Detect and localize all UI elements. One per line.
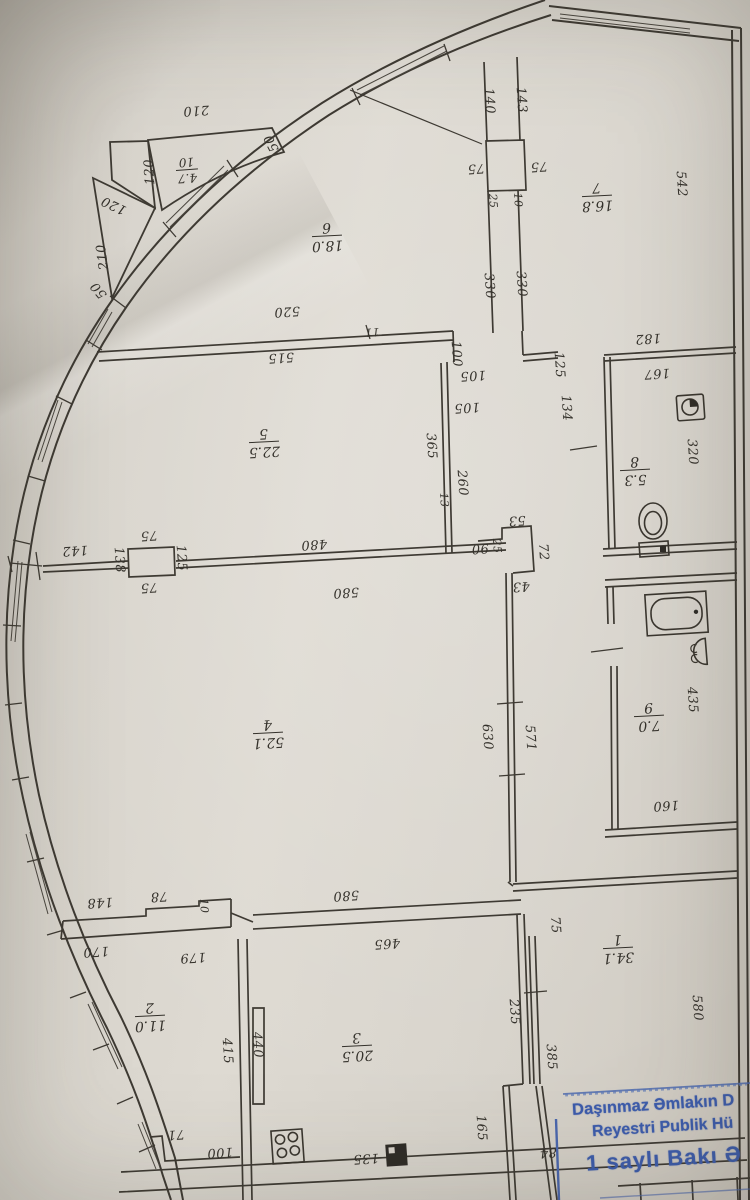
toilet-icon (639, 503, 669, 557)
dimension-label: 105 (454, 399, 481, 416)
dimension-label: 385 (543, 1044, 560, 1071)
dimension-label: 135 (353, 1150, 380, 1167)
dimension-label: 25 (486, 193, 500, 209)
dimension-label: 10 (511, 192, 525, 208)
dimension-label: 75 (530, 158, 548, 174)
dimension-label: 100 (207, 1144, 234, 1161)
dimension-label: 148 (87, 894, 114, 911)
room-label-5: 22.55 (245, 425, 283, 459)
exterior-walls (6, 0, 749, 1200)
meter-icon (385, 1143, 407, 1166)
dimension-label: 520 (274, 303, 301, 320)
room-label-10: 4.710 (171, 155, 203, 185)
dimension-label: 25 (490, 538, 504, 554)
room-label-1: 34.11 (599, 931, 637, 965)
dimension-label: 125 (173, 545, 190, 572)
dimension-label: 465 (374, 935, 401, 952)
dimension-label: 571 (522, 725, 539, 752)
room-label-3: 20.53 (338, 1029, 376, 1063)
dimension-label: 100 (448, 341, 465, 368)
dimension-label: 120 (142, 159, 159, 186)
room-label-8: 5.38 (616, 453, 654, 487)
dimension-label: 10 (197, 898, 211, 914)
dimension-label: 580 (689, 995, 706, 1022)
dimension-label: 182 (635, 330, 662, 347)
dimension-label: 365 (423, 433, 440, 460)
dimension-label: 630 (479, 724, 496, 751)
dimension-label: 440 (249, 1032, 266, 1059)
stove-icon (271, 1129, 304, 1164)
dimension-label: 134 (558, 395, 575, 422)
dimension-label: 160 (653, 797, 680, 814)
washing-machine-icon (676, 394, 705, 421)
room-label-6: 18.06 (308, 219, 346, 253)
dimension-label: 75 (140, 527, 158, 543)
dimension-label: 165 (473, 1115, 490, 1142)
room-label-2: 11.02 (131, 999, 169, 1033)
dimension-label: 125 (551, 352, 568, 379)
dimension-label: 580 (333, 887, 360, 904)
dimension-label: 480 (301, 536, 328, 553)
dimension-label: 140 (481, 88, 498, 115)
dimension-label: 75 (547, 916, 563, 934)
dimension-label: 580 (333, 584, 360, 601)
dimension-label: 210 (183, 102, 210, 119)
dimension-label: 142 (62, 542, 89, 559)
dimension-label: 320 (684, 439, 701, 466)
dimension-label: 43 (512, 578, 530, 594)
dimension-label: 179 (180, 949, 207, 966)
dimension-label: 260 (454, 470, 471, 497)
dimension-label: 13 (437, 492, 451, 508)
dimension-label: 515 (268, 349, 295, 366)
dimension-label: 71 (167, 1126, 185, 1142)
floor-plan-drawing (0, 0, 750, 1200)
dimension-label: 72 (535, 543, 551, 561)
room-label-7: 16.87 (578, 179, 616, 213)
dimension-label: 235 (506, 999, 523, 1026)
dimension-label: 53 (508, 512, 526, 528)
dimension-label: 138 (111, 547, 128, 574)
dimension-label: 105 (460, 367, 487, 384)
dimension-label: 415 (219, 1038, 236, 1065)
dimension-label: 75 (140, 579, 158, 595)
bathtub-icon (645, 591, 708, 636)
room-label-9: 7.09 (630, 699, 668, 733)
room-label-4: 52.14 (249, 716, 287, 750)
dimension-label: 330 (513, 271, 530, 298)
dimension-label: 11 (364, 325, 380, 339)
dimension-label: 90 (471, 540, 489, 556)
dimension-label: 75 (467, 160, 485, 176)
dimension-label: 330 (481, 273, 498, 300)
dimension-label: 435 (684, 687, 701, 714)
floor-plan-photo: 34.11 11.02 20.53 52.14 22.55 18.06 16.8… (0, 0, 750, 1200)
dimension-label: 143 (513, 87, 530, 114)
dimension-label: 170 (83, 943, 110, 960)
dimension-label: 542 (673, 171, 690, 198)
dimension-label: 84 (539, 1144, 557, 1160)
dimension-label: 78 (150, 888, 168, 904)
dimension-label: 167 (644, 365, 671, 382)
sink-icon (690, 638, 707, 665)
